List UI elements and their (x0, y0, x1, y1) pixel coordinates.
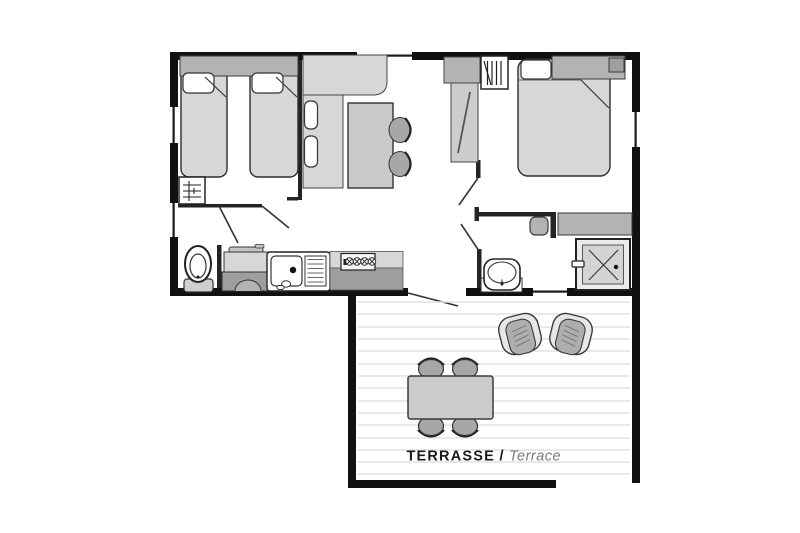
shower-drain (614, 265, 618, 269)
soap-dish (277, 286, 284, 290)
wall-left-1 (170, 52, 178, 107)
wall-children-door-jamb (287, 197, 298, 201)
room-living-dining (303, 55, 480, 188)
wall-shower-corner (551, 212, 557, 238)
bench-cushion-1 (305, 101, 318, 129)
terrace-label-en: Terrace (509, 449, 561, 465)
wall-left-2 (170, 143, 178, 203)
hanging-wardrobe (481, 56, 508, 89)
double-bed-pillow (521, 60, 551, 79)
door-wc (219, 206, 238, 243)
floor-plan-page: TERRASSE / Terrace (0, 0, 800, 533)
hanging-wardrobe-box (481, 56, 508, 89)
shower-door-handle (572, 261, 584, 267)
door-master-bedroom (459, 178, 478, 205)
pillow-1 (183, 73, 214, 93)
terrace-label: TERRASSE / Terrace (406, 448, 561, 465)
wall-shower-top (476, 212, 556, 217)
wall-right-1 (632, 52, 640, 112)
bedside-box (609, 58, 624, 72)
bench-cushion-2 (305, 136, 318, 167)
wall-wc-divider (217, 245, 222, 288)
fridge-top (224, 252, 268, 272)
washbasin (481, 259, 522, 292)
dining-chair-2 (389, 152, 411, 177)
door-children-bedroom (262, 206, 289, 228)
stool (530, 217, 548, 235)
room-shower (481, 213, 632, 292)
counter-front (330, 268, 403, 290)
hob (341, 254, 376, 271)
window-left-1 (173, 107, 175, 143)
sink-unit (267, 252, 330, 291)
room-wc (184, 246, 213, 292)
dining-table (348, 103, 393, 188)
dining-chair-1 (389, 118, 411, 143)
room-master-bedroom (481, 56, 625, 176)
hall-upper-cabinet (444, 57, 480, 83)
outdoor-table (408, 376, 493, 419)
floor-plan: TERRASSE / Terrace (0, 0, 800, 533)
wall-terrace-left (348, 296, 356, 488)
wall-terrace-bottom (348, 480, 556, 488)
fridge (222, 245, 268, 292)
window-left-2 (173, 203, 175, 237)
wall-shower-cap (475, 207, 480, 221)
children-wardrobe (179, 177, 205, 204)
terrace-label-fr: TERRASSE (406, 449, 495, 465)
window-right (635, 112, 637, 147)
toilet-drain (197, 276, 200, 279)
shower (572, 239, 630, 290)
shower-room-shelf (558, 213, 632, 235)
fridge-handle (255, 245, 264, 249)
room-children-bedroom (179, 56, 298, 204)
room-kitchen (222, 245, 403, 292)
door-shower-room (461, 224, 479, 251)
toilet (184, 246, 213, 292)
wall-master-door-stub (476, 160, 481, 178)
pillow-2 (252, 73, 283, 93)
sink-drain (290, 267, 296, 273)
room-terrace: TERRASSE / Terrace (358, 302, 630, 474)
washbasin-drain (500, 282, 503, 285)
window-bottom (533, 291, 567, 293)
wall-left-3 (170, 237, 178, 296)
wall-right-2 (632, 147, 640, 483)
kitchenette-top-unit (303, 55, 387, 95)
door-terrace-entry (408, 293, 458, 306)
